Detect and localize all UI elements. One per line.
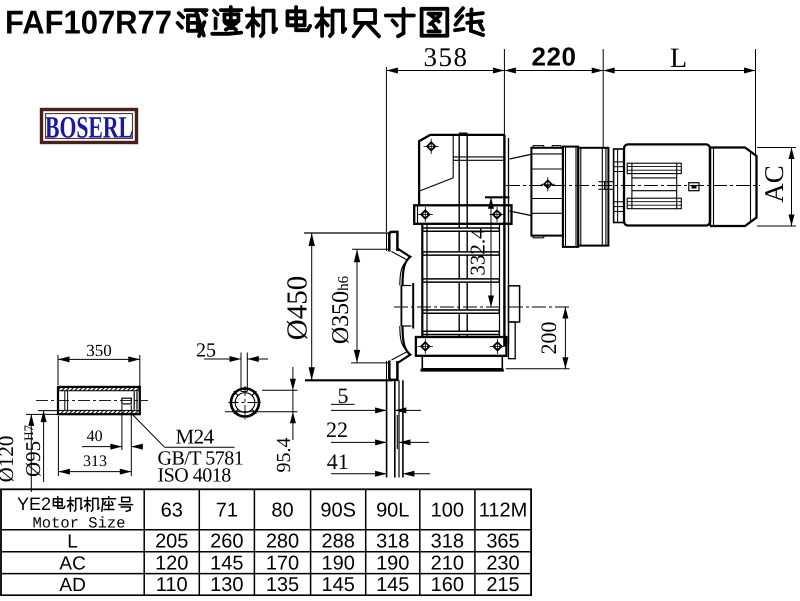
svg-text:95.4: 95.4 [273,438,295,473]
svg-text:318: 318 [376,531,409,553]
svg-text:Ø120: Ø120 [0,436,18,483]
svg-text:160: 160 [431,574,464,596]
svg-text:350: 350 [86,341,112,360]
svg-text:145: 145 [321,574,354,596]
svg-text:25: 25 [196,340,216,362]
svg-text:100: 100 [431,500,464,522]
svg-text:170: 170 [266,552,299,574]
svg-text:41: 41 [327,449,349,474]
svg-text:Motor Size: Motor Size [32,515,125,533]
svg-text:318: 318 [431,531,464,553]
svg-text:ISO 4018: ISO 4018 [158,465,232,487]
svg-text:205: 205 [155,531,188,553]
svg-text:332.4: 332.4 [466,228,490,276]
svg-text:90L: 90L [376,500,409,522]
svg-text:313: 313 [83,453,107,470]
svg-text:358: 358 [424,42,469,72]
svg-text:110: 110 [156,574,188,596]
svg-text:BOSERL: BOSERL [45,110,133,145]
svg-text:AC: AC [759,165,789,203]
svg-text:FAF107R77: FAF107R77 [5,4,172,41]
svg-text:22: 22 [326,417,348,442]
svg-text:145: 145 [376,574,409,596]
svg-text:120: 120 [155,552,188,574]
svg-text:71: 71 [216,500,238,522]
svg-text:200: 200 [536,322,561,355]
svg-text:220: 220 [532,42,577,72]
svg-text:190: 190 [376,552,409,574]
svg-text:AD: AD [59,575,85,596]
svg-text:365: 365 [486,531,519,553]
svg-text:90S: 90S [320,500,356,522]
svg-text:215: 215 [486,574,519,596]
svg-text:230: 230 [486,552,519,574]
svg-text:AC: AC [59,553,85,574]
svg-text:190: 190 [321,552,354,574]
svg-text:135: 135 [266,574,299,596]
svg-text:63: 63 [161,500,183,522]
svg-text:288: 288 [321,531,354,553]
svg-text:112M: 112M [479,500,528,522]
svg-text:Ø450: Ø450 [282,276,314,340]
svg-text:280: 280 [266,531,299,553]
svg-text:145: 145 [210,552,243,574]
svg-text:YE2: YE2 [17,494,51,514]
svg-text:M24: M24 [176,425,215,449]
svg-text:130: 130 [210,574,243,596]
svg-text:260: 260 [210,531,243,553]
svg-text:210: 210 [431,552,464,574]
svg-text:40: 40 [87,428,103,445]
svg-text:80: 80 [271,500,293,522]
svg-text:L: L [670,43,687,74]
svg-text:L: L [67,532,78,553]
